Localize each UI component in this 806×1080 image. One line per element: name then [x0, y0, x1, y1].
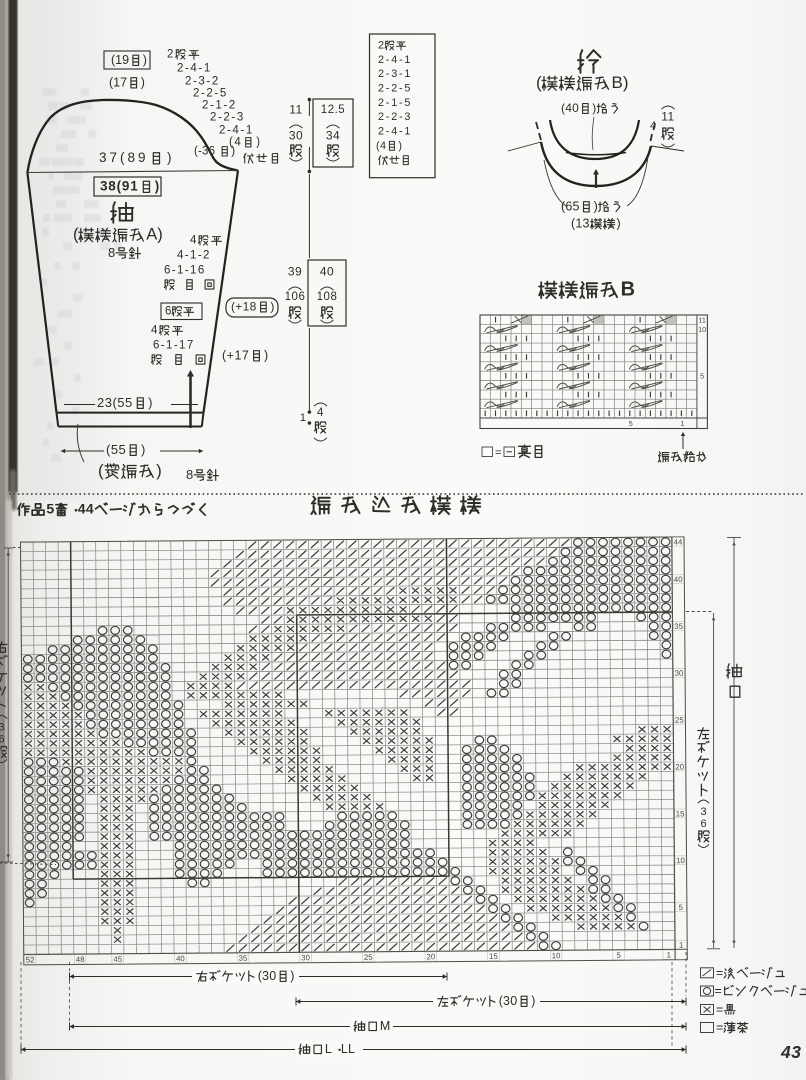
svg-text:(+18: (+18 [231, 300, 257, 314]
svg-text:=: = [495, 447, 501, 459]
svg-text:5: 5 [629, 419, 633, 428]
svg-text:(: ( [73, 226, 79, 244]
svg-text:(: ( [98, 461, 104, 480]
svg-text:4-1-2: 4-1-2 [177, 250, 211, 262]
svg-text:(65: (65 [561, 199, 580, 213]
svg-text:5: 5 [700, 372, 704, 381]
svg-text:4: 4 [151, 325, 159, 337]
svg-text:15: 15 [676, 809, 685, 818]
svg-text:6: 6 [165, 306, 171, 318]
svg-text:2: 2 [378, 40, 384, 52]
svg-text:4: 4 [190, 235, 198, 247]
svg-text:): ) [594, 199, 598, 213]
svg-text:43: 43 [780, 1042, 801, 1062]
svg-text:12.5: 12.5 [321, 104, 345, 116]
svg-text:): ) [617, 216, 621, 230]
svg-text:=: = [716, 966, 723, 980]
svg-text:5: 5 [46, 501, 54, 517]
svg-text:40: 40 [320, 265, 334, 279]
svg-text:): ) [290, 969, 294, 983]
svg-text:2-1-2: 2-1-2 [202, 100, 237, 112]
svg-text:10: 10 [676, 856, 685, 865]
svg-text:): ) [141, 442, 146, 457]
svg-text:): ) [143, 53, 147, 67]
svg-text:34: 34 [326, 129, 340, 143]
svg-text:8: 8 [108, 245, 115, 260]
svg-text:6: 6 [0, 734, 5, 746]
svg-text:A): A) [146, 226, 163, 244]
svg-text:10: 10 [698, 325, 706, 334]
svg-text:2-2-5: 2-2-5 [378, 83, 412, 95]
svg-text:): ) [148, 395, 153, 410]
svg-text:39: 39 [288, 265, 302, 279]
svg-text:2-4-1: 2-4-1 [378, 54, 412, 66]
svg-text:30: 30 [675, 669, 684, 678]
svg-text:30: 30 [289, 129, 303, 143]
svg-text:(: ( [536, 73, 542, 92]
svg-text:1: 1 [679, 941, 683, 950]
svg-text:20: 20 [675, 762, 684, 771]
svg-text:10: 10 [552, 951, 561, 960]
svg-text:): ) [592, 101, 596, 115]
svg-text:2-4-1: 2-4-1 [219, 125, 254, 137]
svg-text:5: 5 [616, 951, 621, 960]
svg-text:25: 25 [675, 716, 684, 725]
svg-text:37(89: 37(89 [99, 150, 149, 165]
svg-text:20: 20 [427, 952, 436, 961]
svg-text:(-36: (-36 [194, 146, 215, 158]
svg-text:1: 1 [681, 419, 685, 428]
svg-text:2-4-1: 2-4-1 [177, 63, 212, 75]
svg-text:1: 1 [300, 412, 306, 424]
svg-text:108: 108 [317, 291, 338, 303]
svg-text:15: 15 [489, 952, 498, 961]
svg-text:40: 40 [674, 575, 683, 584]
svg-text:): ) [398, 140, 402, 152]
svg-text:): ) [155, 179, 160, 194]
svg-text:11: 11 [698, 315, 705, 324]
svg-text:): ) [270, 300, 274, 314]
svg-text:2-2-5: 2-2-5 [193, 88, 228, 100]
svg-text:): ) [141, 75, 145, 89]
svg-text:): ) [256, 137, 261, 149]
svg-text:=: = [716, 1020, 723, 1034]
svg-text:2-1-5: 2-1-5 [378, 97, 412, 109]
svg-text:6-1-16: 6-1-16 [164, 265, 206, 277]
svg-text:11: 11 [661, 110, 674, 124]
svg-text:(40: (40 [561, 101, 579, 115]
svg-text:2-2-3: 2-2-3 [378, 111, 412, 123]
svg-text:): ) [264, 348, 269, 362]
svg-text:52: 52 [26, 955, 35, 964]
svg-text:2-4-1: 2-4-1 [378, 126, 412, 138]
svg-text:30: 30 [301, 953, 310, 962]
svg-text:B): B) [612, 73, 629, 92]
svg-text:): ) [167, 150, 175, 165]
svg-text:2-3-1: 2-3-1 [378, 68, 412, 80]
svg-text:B: B [621, 279, 635, 301]
svg-text:M: M [380, 1019, 391, 1033]
svg-text:44: 44 [78, 501, 94, 517]
svg-text:=: = [715, 984, 722, 998]
svg-text:2: 2 [167, 49, 175, 61]
svg-text:(30: (30 [499, 994, 518, 1008]
svg-text:6: 6 [700, 818, 706, 830]
svg-text:4: 4 [650, 120, 656, 132]
svg-text:11: 11 [289, 103, 302, 117]
svg-text:1: 1 [667, 950, 671, 959]
svg-text:(13: (13 [571, 216, 590, 230]
svg-text:4: 4 [317, 407, 324, 419]
svg-text:L: L [325, 1042, 332, 1056]
svg-text:35: 35 [239, 954, 248, 963]
svg-text:LL: LL [341, 1042, 355, 1056]
svg-text:5: 5 [679, 903, 684, 912]
svg-text:): ) [231, 146, 235, 158]
svg-text:(+17: (+17 [222, 348, 249, 362]
svg-text:2-3-2: 2-3-2 [185, 76, 220, 88]
svg-text:106: 106 [285, 291, 306, 303]
svg-text:(19: (19 [111, 53, 129, 67]
svg-text:(17: (17 [109, 75, 127, 89]
svg-text:8: 8 [186, 467, 193, 482]
svg-text:): ) [531, 994, 535, 1008]
svg-text:6-1-17: 6-1-17 [153, 340, 195, 352]
svg-text:): ) [156, 461, 162, 480]
svg-text:(55: (55 [106, 442, 126, 457]
svg-text:44: 44 [674, 538, 683, 547]
svg-text:40: 40 [176, 954, 185, 963]
svg-text:45: 45 [113, 955, 122, 964]
svg-text:48: 48 [76, 955, 85, 964]
svg-text:3: 3 [700, 806, 706, 818]
svg-text:(30: (30 [258, 969, 277, 983]
svg-text:23(55: 23(55 [97, 395, 133, 410]
svg-text:38(91: 38(91 [100, 179, 139, 194]
svg-text:25: 25 [364, 953, 373, 962]
svg-text:=: = [716, 1002, 723, 1016]
svg-text:3: 3 [0, 722, 5, 734]
svg-text:35: 35 [674, 622, 683, 631]
svg-text:(4: (4 [376, 140, 386, 152]
svg-text:2-2-3: 2-2-3 [210, 112, 245, 124]
